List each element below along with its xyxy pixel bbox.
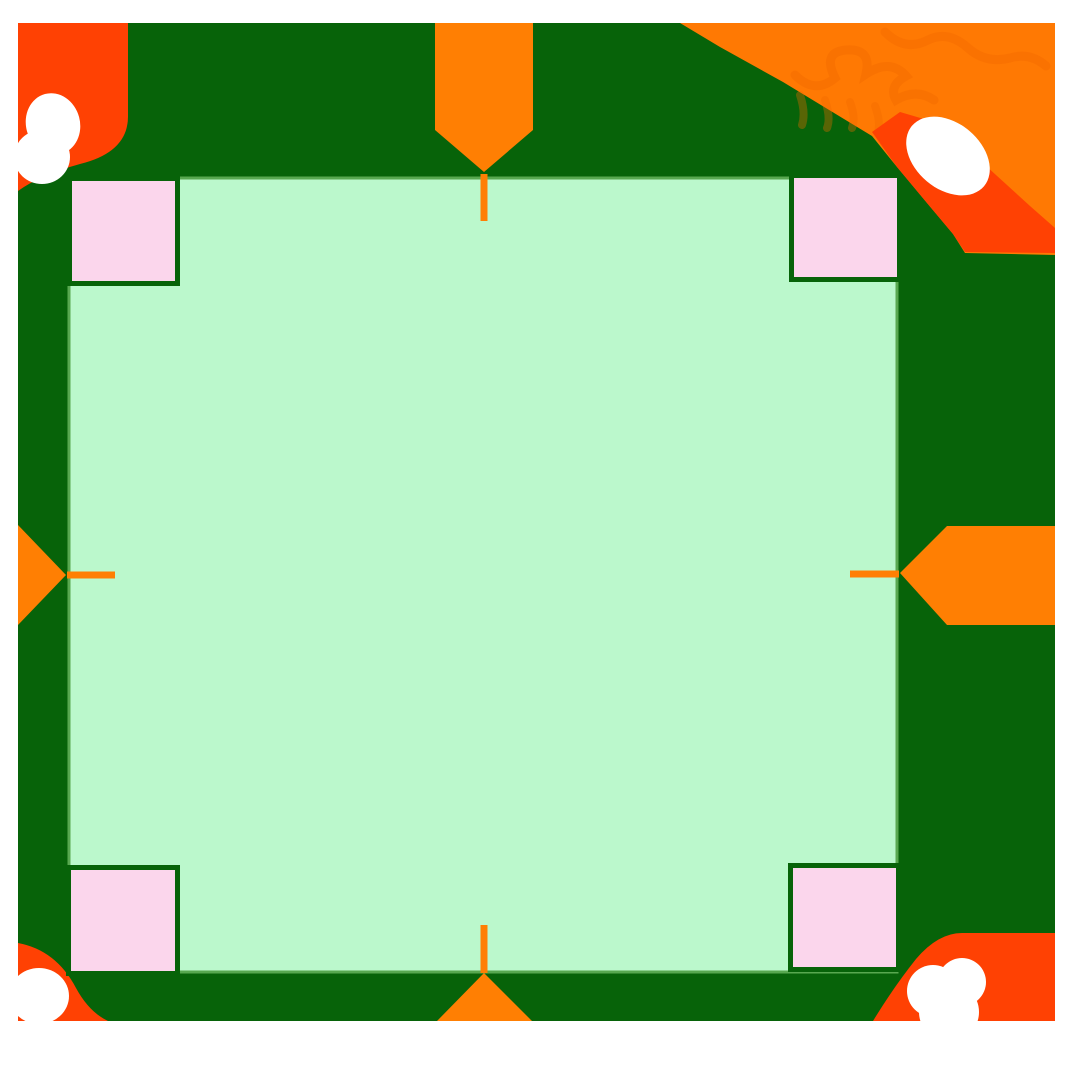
right-angle-marker-top-left (72, 181, 175, 281)
square-geometry-diagram (0, 0, 1080, 1080)
main-square (69, 178, 897, 972)
canvas (0, 0, 1080, 1080)
right-angle-marker-top-right (794, 178, 897, 277)
paint-blob-bottom-right-3 (919, 982, 979, 1042)
right-angle-marker-bottom-left (71, 870, 175, 971)
paint-blob-top-left-lower (14, 130, 70, 184)
right-angle-marker-bottom-right (793, 868, 896, 967)
paint-blob-bottom-left (9, 968, 69, 1024)
